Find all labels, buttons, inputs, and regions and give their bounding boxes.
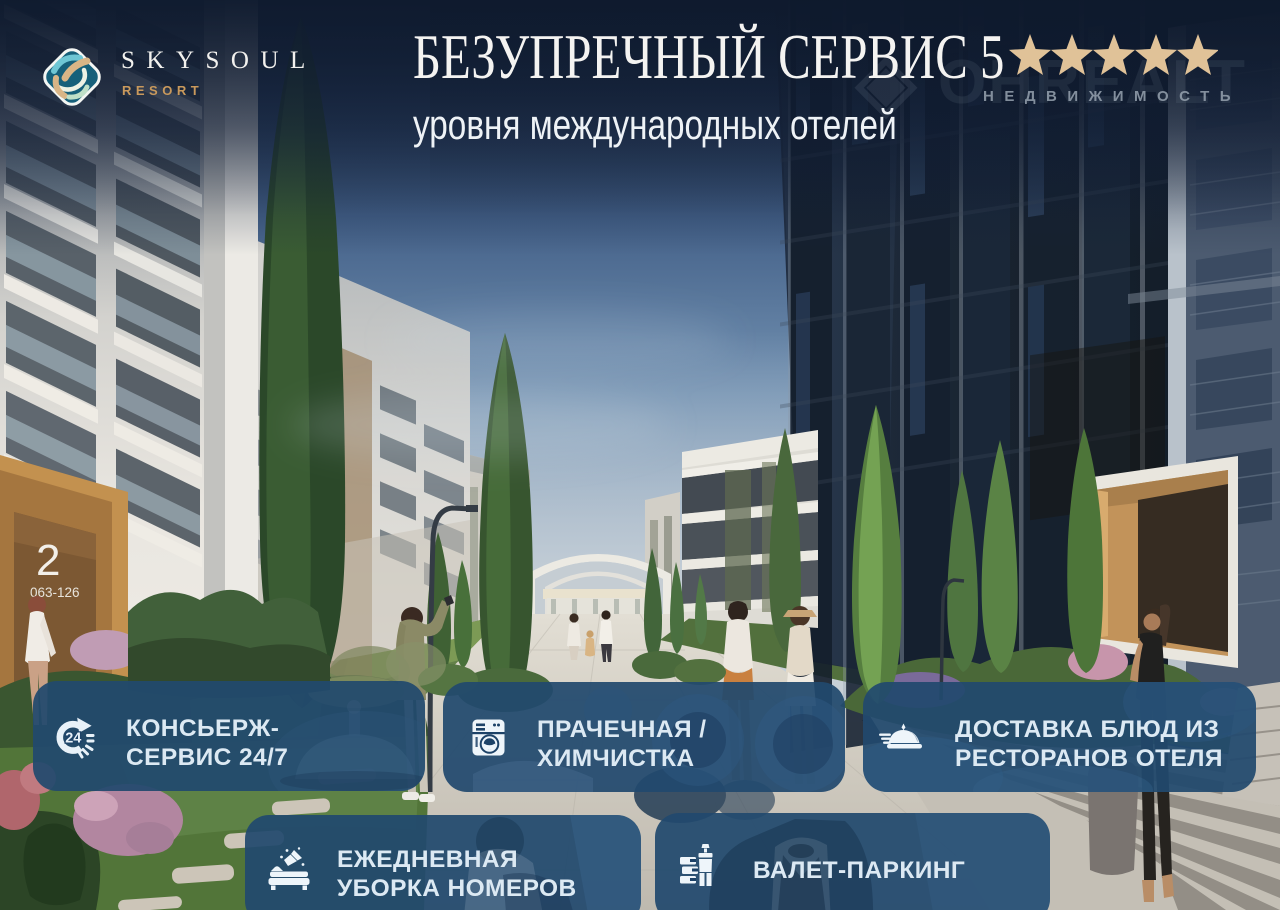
svg-text:2: 2	[36, 536, 60, 585]
svg-text:24: 24	[65, 731, 81, 747]
